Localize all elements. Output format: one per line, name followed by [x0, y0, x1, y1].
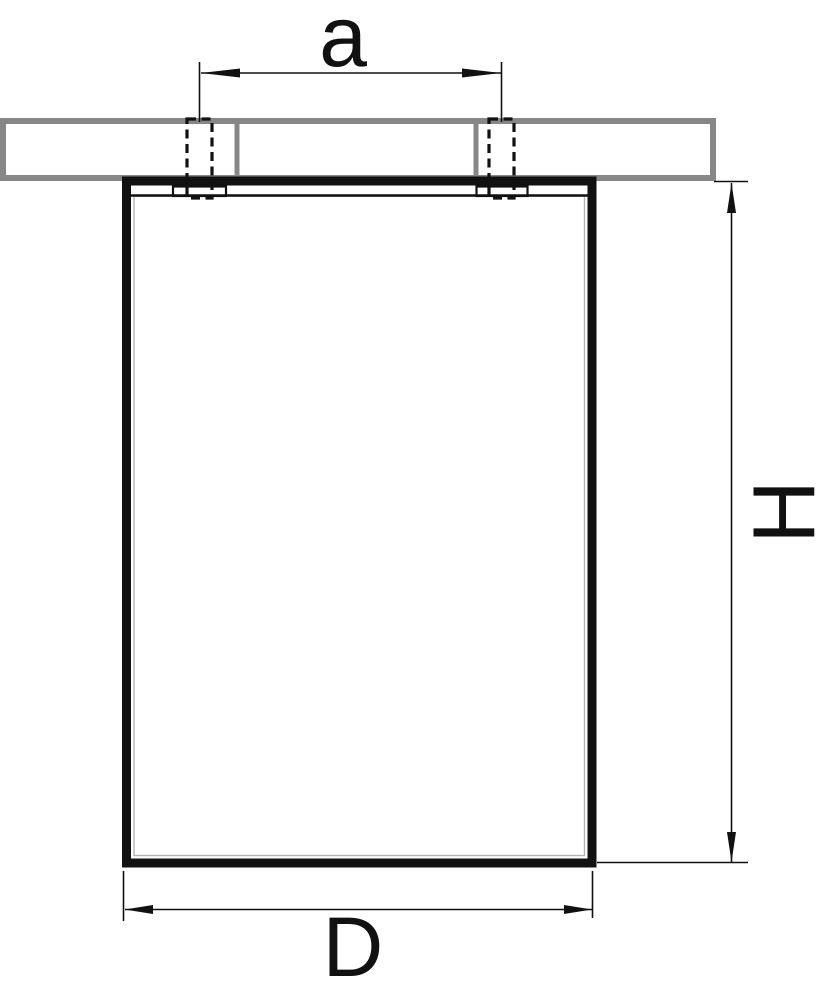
d-arrow-left	[125, 905, 153, 914]
dimension-h: H	[597, 182, 816, 863]
fixture-dimension-drawing: a H D	[0, 0, 816, 1000]
a-arrow-right	[462, 69, 501, 78]
dimension-a: a	[200, 0, 502, 122]
a-label: a	[319, 0, 367, 85]
d-arrow-right	[564, 905, 592, 914]
fixture-body	[127, 181, 593, 863]
d-label: D	[323, 900, 384, 994]
h-arrow-top	[727, 183, 736, 213]
diagram-canvas: a H D	[0, 0, 816, 1000]
h-label: H	[734, 480, 816, 544]
ceiling-hatch-band	[3, 121, 713, 178]
h-arrow-bottom	[727, 832, 736, 862]
fixture-outline	[127, 181, 593, 863]
a-arrow-left	[201, 69, 240, 78]
dimension-d: D	[124, 871, 593, 994]
ceiling-section	[3, 120, 713, 179]
